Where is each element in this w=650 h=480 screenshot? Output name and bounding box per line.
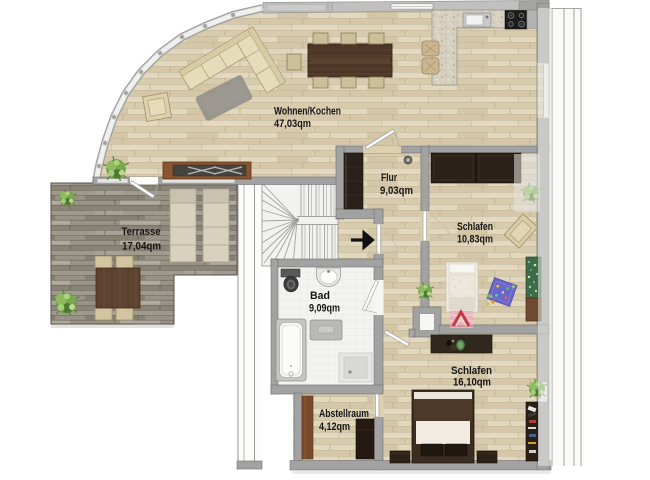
svg-text:Terrasse: Terrasse <box>122 226 161 238</box>
svg-text:4,12qm: 4,12qm <box>319 421 350 433</box>
svg-text:9,03qm: 9,03qm <box>380 185 413 197</box>
svg-text:47,03qm: 47,03qm <box>274 118 311 130</box>
svg-text:17,04qm: 17,04qm <box>122 241 161 253</box>
svg-text:Abstellraum: Abstellraum <box>319 408 369 420</box>
svg-text:Wohnen/Kochen: Wohnen/Kochen <box>274 106 341 118</box>
svg-text:Flur: Flur <box>381 172 398 184</box>
svg-text:Bad: Bad <box>310 290 330 302</box>
svg-text:16,10qm: 16,10qm <box>453 377 491 389</box>
svg-text:9,09qm: 9,09qm <box>309 303 340 315</box>
svg-text:Schlafen: Schlafen <box>451 365 492 377</box>
svg-text:Schlafen: Schlafen <box>457 221 493 233</box>
svg-text:10,83qm: 10,83qm <box>457 234 493 246</box>
